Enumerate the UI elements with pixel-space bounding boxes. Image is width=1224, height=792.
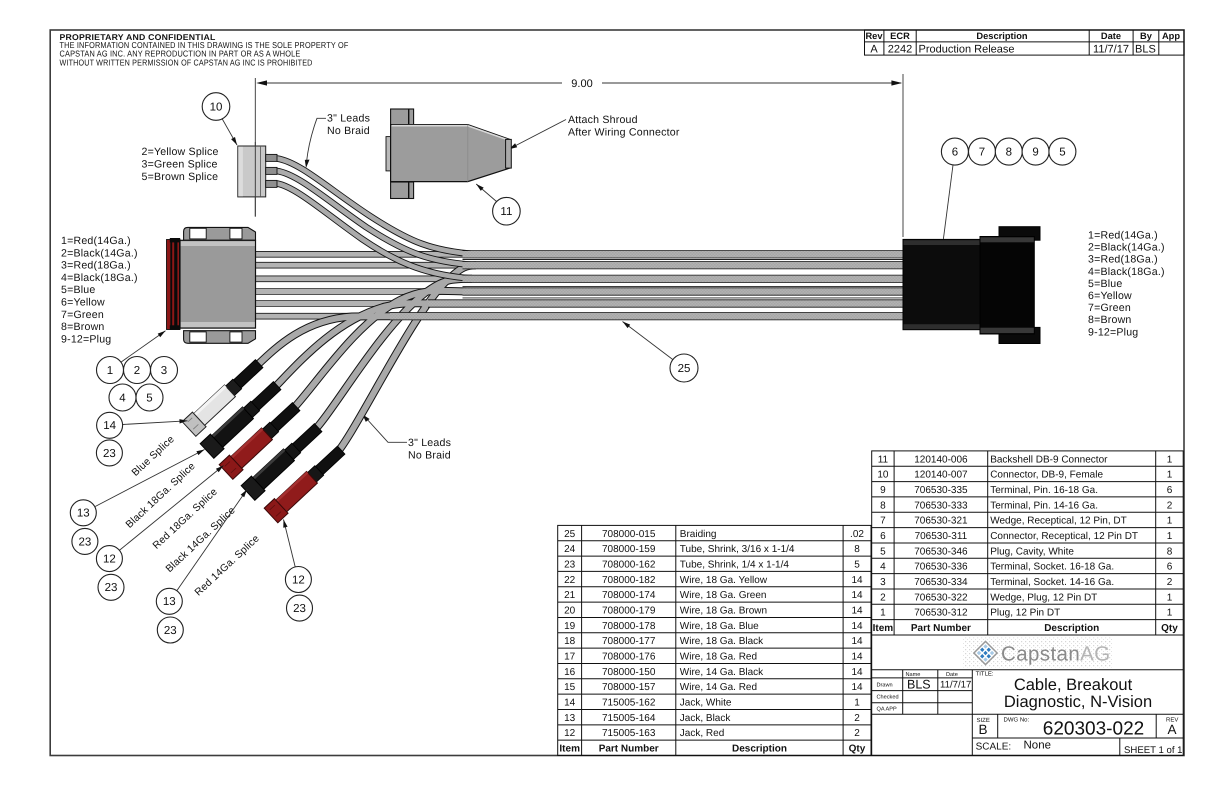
svg-text:Backshell DB-9 Connector: Backshell DB-9 Connector [990, 454, 1108, 465]
svg-text:Jack, White: Jack, White [680, 698, 732, 709]
svg-text:620303-022: 620303-022 [1043, 719, 1144, 740]
svg-text:3: 3 [880, 577, 886, 588]
svg-text:4: 4 [880, 562, 886, 573]
svg-text:12: 12 [103, 554, 116, 566]
svg-text:13: 13 [77, 508, 90, 520]
svg-text:9-12=Plug: 9-12=Plug [1088, 326, 1138, 338]
svg-text:2=Yellow Splice: 2=Yellow Splice [142, 146, 219, 158]
svg-text:14: 14 [851, 667, 863, 678]
svg-text:6=Yellow: 6=Yellow [61, 297, 105, 309]
svg-text:3" Leads: 3" Leads [327, 113, 370, 125]
svg-text:7=Green: 7=Green [1088, 302, 1131, 314]
svg-text:14: 14 [851, 682, 863, 693]
svg-text:SHEET 1 of 1: SHEET 1 of 1 [1124, 745, 1182, 756]
svg-text:8: 8 [1167, 546, 1173, 557]
svg-text:B: B [979, 722, 988, 737]
svg-text:A: A [1168, 722, 1177, 737]
svg-text:Terminal, Socket. 14-16 Ga.: Terminal, Socket. 14-16 Ga. [990, 577, 1114, 588]
svg-text:Rev: Rev [865, 31, 883, 41]
svg-text:Connector, Receptical, 12 Pin: Connector, Receptical, 12 Pin DT [990, 531, 1138, 542]
svg-text:Diagnostic, N-Vision: Diagnostic, N-Vision [1004, 693, 1152, 711]
svg-text:6: 6 [1167, 485, 1173, 496]
svg-text:23: 23 [103, 448, 116, 460]
svg-text:After Wiring Connector: After Wiring Connector [568, 127, 680, 139]
svg-text:14: 14 [564, 698, 576, 709]
svg-text:BLS: BLS [907, 678, 931, 692]
svg-text:706530-312: 706530-312 [914, 608, 968, 619]
svg-text:14: 14 [851, 621, 863, 632]
svg-text:1: 1 [880, 608, 886, 619]
svg-text:4=Black(18Ga.): 4=Black(18Ga.) [61, 272, 138, 284]
svg-text:Description: Description [976, 31, 1027, 41]
svg-text:23: 23 [164, 625, 177, 637]
svg-text:708000-159: 708000-159 [602, 544, 656, 555]
svg-text:Wire, 18 Ga. Brown: Wire, 18 Ga. Brown [680, 606, 767, 617]
svg-text:1: 1 [1167, 592, 1173, 603]
svg-text:Wire, 14 Ga. Black: Wire, 14 Ga. Black [680, 667, 764, 678]
svg-text:5: 5 [1059, 147, 1065, 159]
svg-text:ECR: ECR [890, 31, 910, 41]
svg-text:14: 14 [851, 606, 863, 617]
svg-text:8: 8 [1006, 147, 1012, 159]
svg-text:Wedge, Plug, 12 Pin DT: Wedge, Plug, 12 Pin DT [990, 592, 1097, 603]
svg-text:Tube, Shrink, 3/16 x 1-1/4: Tube, Shrink, 3/16 x 1-1/4 [680, 544, 795, 555]
svg-text:12: 12 [292, 574, 305, 586]
svg-text:8: 8 [854, 544, 860, 555]
svg-text:3=Green Splice: 3=Green Splice [142, 159, 218, 171]
svg-text:10: 10 [877, 470, 889, 481]
svg-text:3=Red(18Ga.): 3=Red(18Ga.) [61, 260, 131, 272]
svg-text:Part Number: Part Number [911, 623, 971, 634]
svg-text:19: 19 [564, 621, 576, 632]
svg-text:11/7/17: 11/7/17 [1093, 43, 1129, 55]
svg-text:1=Red(14Ga.): 1=Red(14Ga.) [61, 235, 131, 247]
svg-text:14: 14 [851, 652, 863, 663]
svg-text:Description: Description [1044, 623, 1099, 634]
svg-text:WITHOUT WRITTEN PERMISSION OF: WITHOUT WRITTEN PERMISSION OF CAPSTAN AG… [60, 57, 313, 67]
svg-text:Item: Item [559, 744, 580, 755]
svg-text:Wire, 14 Ga. Red: Wire, 14 Ga. Red [680, 682, 757, 693]
svg-text:CapstanAG: CapstanAG [1001, 643, 1111, 666]
svg-text:7=Green: 7=Green [61, 309, 104, 321]
svg-text:708000-179: 708000-179 [602, 606, 656, 617]
svg-text:14: 14 [103, 420, 116, 432]
svg-text:6=Yellow: 6=Yellow [1088, 290, 1132, 302]
svg-text:25: 25 [678, 363, 691, 375]
svg-text:QA APP: QA APP [877, 707, 897, 713]
svg-text:9.00: 9.00 [571, 78, 592, 90]
svg-text:23: 23 [79, 536, 92, 548]
svg-text:Item: Item [873, 623, 894, 634]
svg-text:Qty: Qty [849, 744, 866, 755]
svg-text:11/7/17: 11/7/17 [940, 680, 971, 691]
svg-text:1: 1 [1167, 531, 1173, 542]
svg-text:Terminal, Pin. 14-16 Ga.: Terminal, Pin. 14-16 Ga. [990, 500, 1098, 511]
svg-text:23: 23 [105, 582, 118, 594]
svg-text:3" Leads: 3" Leads [408, 437, 451, 449]
svg-text:3=Red(18Ga.): 3=Red(18Ga.) [1088, 254, 1158, 266]
svg-text:2: 2 [1167, 577, 1173, 588]
svg-text:8=Brown: 8=Brown [61, 321, 105, 333]
svg-text:4: 4 [119, 392, 126, 404]
svg-text:23: 23 [293, 603, 306, 615]
svg-text:2=Black(14Ga.): 2=Black(14Ga.) [61, 247, 138, 259]
svg-text:17: 17 [564, 652, 576, 663]
svg-text:8=Brown: 8=Brown [1088, 314, 1132, 326]
svg-text:11: 11 [500, 206, 512, 218]
svg-text:5: 5 [146, 392, 152, 404]
svg-text:20: 20 [564, 606, 576, 617]
svg-text:1: 1 [1167, 470, 1173, 481]
svg-text:715005-164: 715005-164 [602, 713, 656, 724]
svg-text:Part Number: Part Number [599, 744, 659, 755]
svg-text:708000-150: 708000-150 [602, 667, 656, 678]
svg-text:No Braid: No Braid [408, 450, 451, 462]
svg-text:Braiding: Braiding [680, 529, 717, 540]
svg-text:Jack, Red: Jack, Red [680, 728, 724, 739]
svg-text:708000-182: 708000-182 [602, 575, 656, 586]
svg-text:2: 2 [854, 728, 860, 739]
svg-text:Wire, 18 Ga. Yellow: Wire, 18 Ga. Yellow [680, 575, 768, 586]
svg-text:DWG No:: DWG No: [1004, 717, 1030, 724]
svg-text:2242: 2242 [888, 43, 912, 55]
svg-text:Plug, 12 Pin DT: Plug, 12 Pin DT [990, 608, 1060, 619]
svg-text:Wire, 18 Ga. Red: Wire, 18 Ga. Red [680, 652, 757, 663]
svg-text:14: 14 [851, 575, 863, 586]
svg-text:Date: Date [946, 672, 958, 678]
svg-text:Wire, 18 Ga. Black: Wire, 18 Ga. Black [680, 636, 764, 647]
svg-text:2=Black(14Ga.): 2=Black(14Ga.) [1088, 242, 1165, 254]
svg-text:706530-346: 706530-346 [914, 546, 968, 557]
svg-text:8: 8 [880, 500, 886, 511]
svg-text:14: 14 [851, 590, 863, 601]
svg-text:708000-176: 708000-176 [602, 652, 656, 663]
svg-text:5=Brown Splice: 5=Brown Splice [142, 171, 219, 183]
svg-text:23: 23 [564, 559, 576, 570]
svg-text:706530-322: 706530-322 [914, 592, 968, 603]
svg-text:24: 24 [564, 544, 576, 555]
svg-text:By: By [1140, 31, 1153, 41]
svg-text:Description: Description [732, 744, 787, 755]
svg-text:Plug, Cavity, White: Plug, Cavity, White [990, 546, 1074, 557]
svg-text:Date: Date [1101, 31, 1121, 41]
svg-text:16: 16 [564, 667, 576, 678]
svg-text:5=Blue: 5=Blue [61, 284, 95, 296]
svg-text:6: 6 [952, 147, 958, 159]
svg-text:1=Red(14Ga.): 1=Red(14Ga.) [1088, 230, 1158, 242]
svg-text:Terminal, Socket. 16-18 Ga.: Terminal, Socket. 16-18 Ga. [990, 562, 1114, 573]
svg-text:706530-321: 706530-321 [914, 516, 968, 527]
svg-text:7: 7 [979, 147, 985, 159]
svg-text:9: 9 [1032, 147, 1038, 159]
svg-text:9-12=Plug: 9-12=Plug [61, 333, 111, 345]
svg-text:TITLE:: TITLE: [976, 671, 994, 678]
svg-text:715005-162: 715005-162 [602, 698, 656, 709]
svg-text:2: 2 [854, 713, 860, 724]
svg-text:708000-178: 708000-178 [602, 621, 656, 632]
svg-text:Qty: Qty [1161, 623, 1178, 634]
svg-text:Production Release: Production Release [919, 43, 1015, 55]
svg-text:706530-334: 706530-334 [914, 577, 968, 588]
svg-text:Attach Shroud: Attach Shroud [568, 114, 638, 126]
svg-text:Connector, DB-9, Female: Connector, DB-9, Female [990, 470, 1103, 481]
svg-text:21: 21 [564, 590, 576, 601]
svg-text:120140-007: 120140-007 [914, 470, 968, 481]
svg-text:6: 6 [880, 531, 886, 542]
svg-text:Tube, Shrink, 1/4 x 1-1/4: Tube, Shrink, 1/4 x 1-1/4 [680, 559, 790, 570]
svg-text:2: 2 [134, 365, 140, 377]
svg-text:Wire, 18 Ga. Green: Wire, 18 Ga. Green [680, 590, 767, 601]
svg-text:No Braid: No Braid [327, 125, 370, 137]
svg-text:5: 5 [854, 559, 860, 570]
svg-text:1: 1 [1167, 516, 1173, 527]
svg-text:7: 7 [880, 516, 886, 527]
svg-text:706530-333: 706530-333 [914, 500, 968, 511]
svg-text:22: 22 [564, 575, 576, 586]
svg-text:13: 13 [163, 596, 176, 608]
svg-text:.02: .02 [850, 529, 864, 540]
svg-text:1: 1 [1167, 454, 1173, 465]
svg-text:18: 18 [564, 636, 576, 647]
svg-text:BLS: BLS [1135, 43, 1156, 55]
svg-text:2: 2 [880, 592, 886, 603]
svg-text:A: A [870, 43, 878, 55]
svg-text:25: 25 [564, 529, 576, 540]
svg-text:9: 9 [880, 485, 886, 496]
svg-text:708000-015: 708000-015 [602, 529, 656, 540]
svg-text:Wire, 18 Ga. Blue: Wire, 18 Ga. Blue [680, 621, 759, 632]
svg-text:1: 1 [107, 365, 113, 377]
svg-text:Terminal, Pin. 16-18 Ga.: Terminal, Pin. 16-18 Ga. [990, 485, 1098, 496]
svg-text:13: 13 [564, 713, 576, 724]
svg-text:12: 12 [564, 728, 576, 739]
svg-text:Drawn: Drawn [877, 683, 893, 689]
svg-text:1: 1 [854, 698, 860, 709]
svg-text:14: 14 [851, 636, 863, 647]
svg-text:708000-177: 708000-177 [602, 636, 656, 647]
svg-text:App: App [1162, 31, 1180, 41]
svg-text:708000-162: 708000-162 [602, 559, 656, 570]
svg-text:None: None [1024, 740, 1052, 752]
svg-text:Jack, Black: Jack, Black [680, 713, 732, 724]
svg-text:10: 10 [210, 101, 223, 113]
svg-text:SCALE:: SCALE: [976, 742, 1012, 753]
svg-text:Checked: Checked [877, 694, 899, 701]
svg-text:2: 2 [1167, 500, 1173, 511]
svg-text:4=Black(18Ga.): 4=Black(18Ga.) [1088, 266, 1165, 278]
svg-text:11: 11 [878, 454, 889, 465]
svg-text:15: 15 [564, 682, 576, 693]
svg-text:5: 5 [880, 546, 886, 557]
svg-text:6: 6 [1167, 562, 1173, 573]
svg-text:5=Blue: 5=Blue [1088, 278, 1122, 290]
svg-text:706530-336: 706530-336 [914, 562, 968, 573]
svg-text:120140-006: 120140-006 [914, 454, 968, 465]
svg-text:Wedge, Receptical, 12 Pin, DT: Wedge, Receptical, 12 Pin, DT [990, 516, 1127, 527]
svg-text:706530-311: 706530-311 [915, 531, 968, 542]
svg-text:Cable, Breakout: Cable, Breakout [1014, 676, 1133, 694]
svg-text:708000-174: 708000-174 [602, 590, 656, 601]
svg-text:1: 1 [1167, 608, 1173, 619]
svg-text:3: 3 [161, 365, 167, 377]
svg-text:708000-157: 708000-157 [602, 682, 656, 693]
svg-text:706530-335: 706530-335 [914, 485, 968, 496]
svg-text:715005-163: 715005-163 [602, 728, 656, 739]
